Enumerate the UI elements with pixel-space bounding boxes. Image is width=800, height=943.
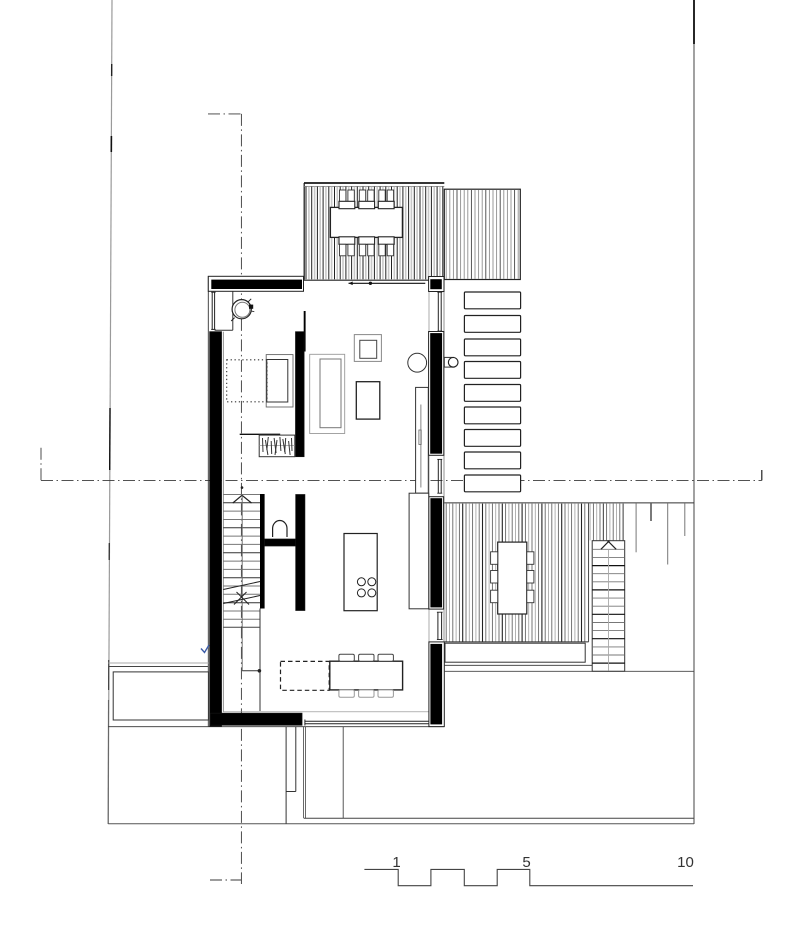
svg-text:10: 10 [677,854,694,871]
svg-text:1: 1 [392,854,400,871]
svg-text:5: 5 [522,854,530,871]
